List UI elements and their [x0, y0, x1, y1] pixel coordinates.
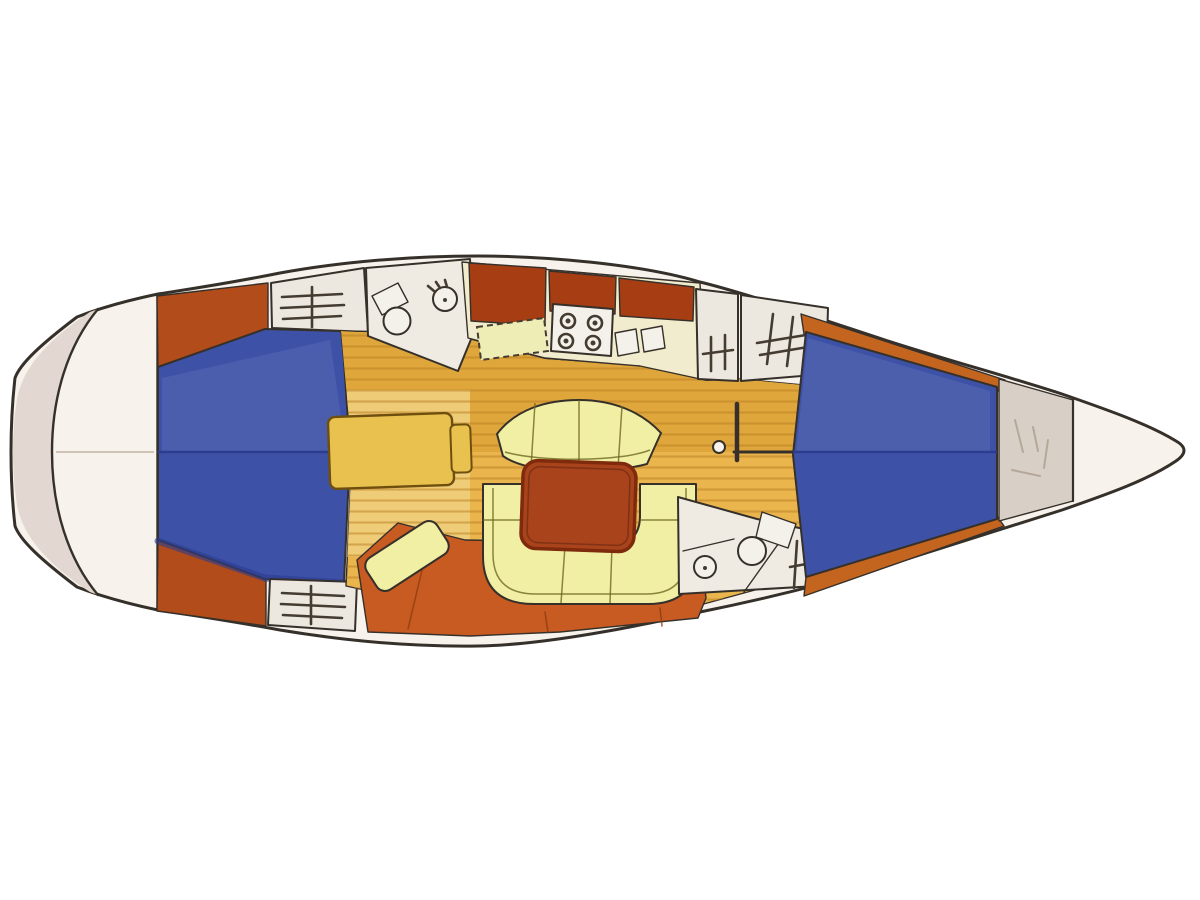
aft-cabin: Aft double berth cabin — [157, 283, 350, 626]
companionway: Companionway steps — [696, 289, 738, 381]
table-top — [520, 460, 636, 552]
boat-layout-diagram: Hull outline Stern swim platform / trans… — [0, 0, 1200, 900]
forward-cabin: Forward V-berth cabin — [793, 314, 1005, 596]
yacht-plan-canvas: Hull outline Stern swim platform / trans… — [0, 0, 1200, 900]
toilet-icon — [384, 308, 411, 335]
stove-top — [551, 304, 613, 356]
mast-ring-icon — [713, 441, 725, 453]
aft-hanging-locker-bottom: Aft hanging locker (starboard) — [268, 579, 357, 631]
toilet-icon — [738, 537, 766, 565]
sink-bowl-1 — [615, 329, 639, 356]
chart-table-fiddle — [450, 424, 472, 473]
companionway-panel — [696, 289, 738, 381]
chart-table — [328, 413, 454, 489]
stove: Four-burner stove — [551, 304, 613, 356]
sink-drain — [703, 566, 707, 570]
galley-cabinet-1 — [469, 263, 546, 326]
anchor-locker-area — [999, 379, 1073, 521]
anchor-locker: Anchor locker — [999, 379, 1073, 521]
saloon-table: Saloon table — [520, 460, 636, 552]
sink-bowl-2 — [641, 326, 665, 352]
sink-drain — [443, 298, 447, 302]
